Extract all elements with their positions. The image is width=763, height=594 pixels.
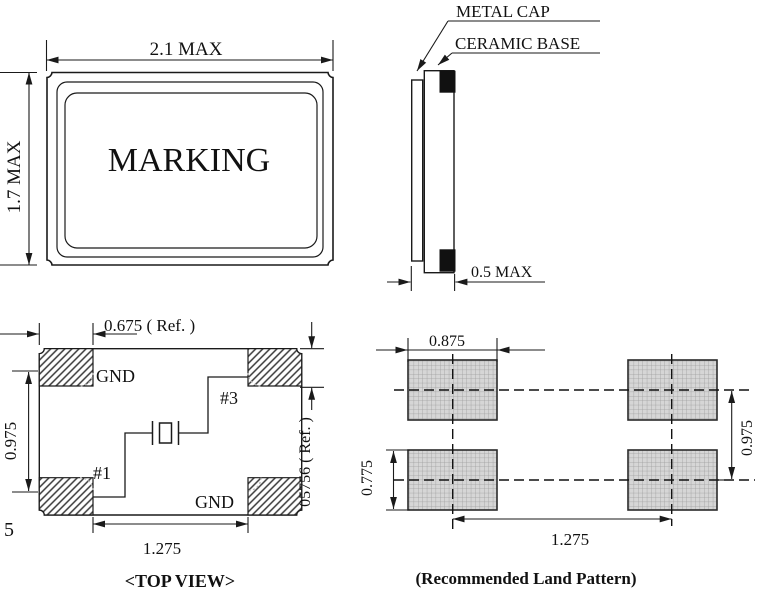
dim-thickness-label: 0.5 MAX [471, 264, 533, 281]
marking-text: MARKING [108, 142, 270, 179]
land-dim-width-label: 0.875 [429, 333, 465, 350]
pin3-label: #3 [220, 388, 238, 408]
drawing-canvas: 2.1 MAX 1.7 MAX MARKING METAL CAP CERAMI… [0, 0, 763, 594]
pad-gnd-top-left [39, 349, 93, 386]
figure-top-view [0, 322, 324, 533]
dim-bottom-1275 [93, 517, 248, 533]
metal-cap-shape [412, 80, 423, 261]
figure-side-view [387, 21, 600, 291]
ceramic-base-shape [424, 71, 454, 273]
dim-right-05756 [300, 322, 324, 410]
ceramic-base-label: CERAMIC BASE [455, 34, 580, 53]
dim-width-label: 2.1 MAX [150, 39, 223, 60]
dim-left-label: 0.975 [1, 422, 20, 460]
metal-cap-label: METAL CAP [456, 2, 550, 21]
top-view-caption: <TOP VIEW> [125, 571, 235, 591]
edge-note-label: 5 [4, 519, 14, 541]
figure-land-pattern [376, 338, 755, 531]
terminal-bottom [440, 249, 456, 271]
crystal-body [160, 423, 172, 443]
dim-bottom-label: 1.275 [143, 539, 181, 558]
pad-1-bottom-left [39, 478, 93, 515]
land-dim-row-pitch-label: 0.975 [739, 420, 756, 456]
pad-gnd-bottom-right [248, 478, 302, 515]
gnd-top-label: GND [96, 366, 135, 386]
mechanical-drawing-page: 2.1 MAX 1.7 MAX MARKING METAL CAP CERAMI… [0, 0, 763, 594]
land-dim-height-label: 0.775 [359, 460, 376, 496]
dim-height-label: 1.7 MAX [4, 140, 25, 213]
dim-right-label: 05756 ( Ref. ) [297, 417, 314, 507]
pad-3-top-right [248, 349, 302, 386]
land-dim-col-pitch-label: 1.275 [551, 530, 589, 549]
terminal-top [440, 71, 456, 93]
dim-top-label: 0.675 ( Ref. ) [104, 316, 195, 335]
dim-row-pitch-0975 [716, 391, 732, 480]
pin1-label: #1 [93, 463, 111, 483]
land-pattern-caption: (Recommended Land Pattern) [416, 569, 637, 588]
leader-ceramic-base [438, 53, 600, 65]
gnd-bottom-label: GND [195, 492, 234, 512]
